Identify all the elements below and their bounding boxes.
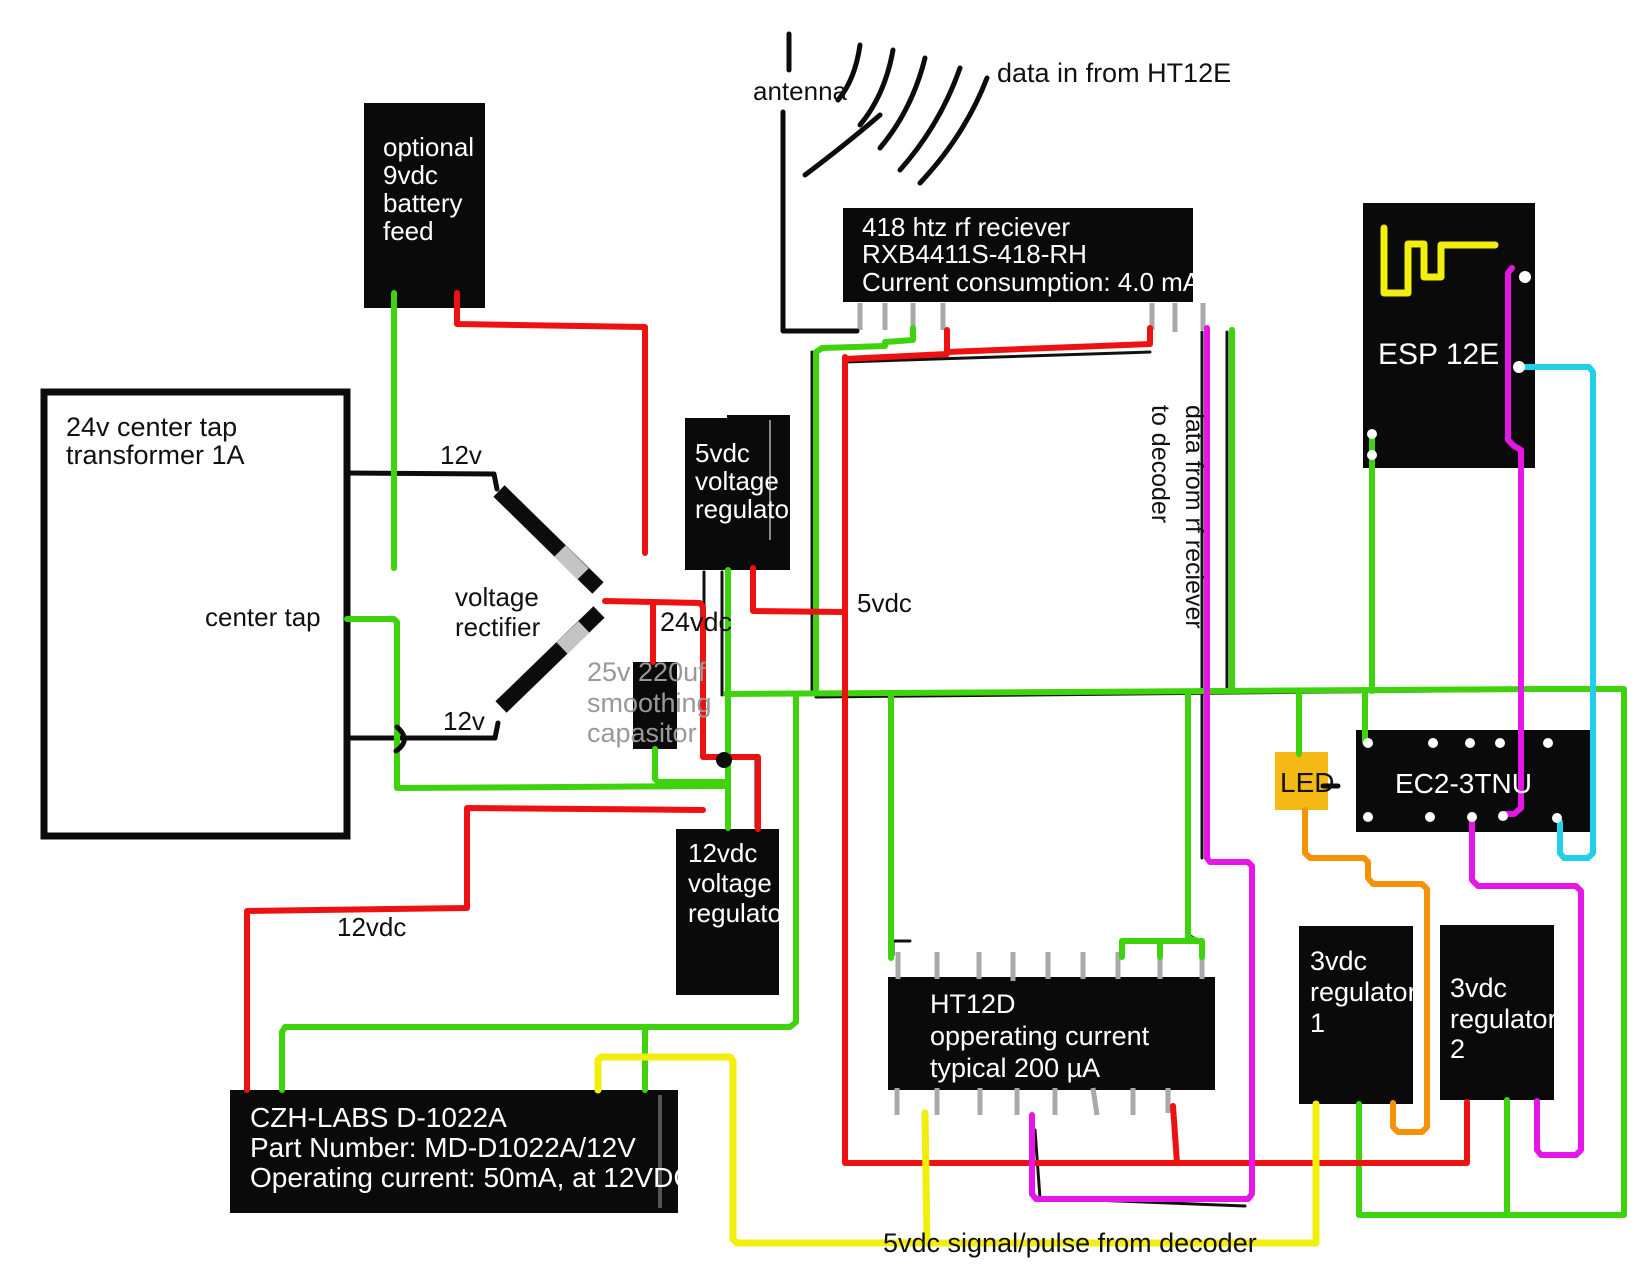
wire-battery-red [457, 293, 645, 553]
ht12d-bottom-pins [897, 1088, 1168, 1115]
czh-label-1: CZH-LABS D-1022A [250, 1102, 507, 1133]
reg5-label-3: regulator [695, 494, 798, 524]
reg12-label-1: 12vdc [688, 838, 757, 868]
battery-label-2: 9vdc [383, 160, 438, 190]
transformer-12v-top-wire [347, 473, 497, 489]
rectifier-label-1: voltage [455, 582, 539, 612]
pulse-label: 5vdc signal/pulse from decoder [883, 1228, 1257, 1258]
data-from-rf-label-2: to decoder [1146, 405, 1174, 523]
shadow-5vdc-out [753, 572, 843, 612]
data-from-rf-label-1: data from rf reciever [1180, 405, 1208, 629]
reg3-2-label-3: 2 [1450, 1034, 1465, 1064]
relay-label: EC2-3TNU [1395, 768, 1532, 799]
antenna-waves-icon [805, 45, 987, 183]
red-wires [247, 293, 1467, 1163]
transformer-label-1: 24v center tap [66, 412, 237, 442]
data-in-label: data in from HT12E [997, 58, 1231, 88]
wire-12vdc-feed [247, 808, 703, 1090]
wire-bus-to-ht12d-hook [1122, 694, 1202, 957]
reg3-2-label-2: regulator [1450, 1004, 1557, 1034]
battery-label-4: feed [383, 216, 434, 246]
vdc5-label: 5vdc [857, 588, 912, 618]
czh-label-3: Operating current: 50mA, at 12VDC. [250, 1162, 701, 1193]
circuit-diagram-page: antenna data in from HT12E optional 9vdc… [0, 0, 1650, 1275]
vdc24-label: 24vdc [660, 607, 732, 637]
led-label: LED [1280, 767, 1334, 798]
junction-dot [716, 752, 732, 768]
czh-label-2: Part Number: MD-D1022A/12V [250, 1132, 636, 1163]
ht12d-top-pins [898, 952, 1202, 981]
ht12d-label-1: HT12D [930, 989, 1016, 1019]
rf-label-1: 418 htz rf reciever [862, 212, 1070, 242]
ht12d-label-3: typical 200 µA [930, 1053, 1100, 1083]
esp-label: ESP 12E [1378, 338, 1499, 371]
circuit-diagram: antenna data in from HT12E optional 9vdc… [0, 0, 1650, 1275]
reg3-2-label-1: 3vdc [1450, 973, 1507, 1003]
capacitor-label-2: smoothing [587, 688, 712, 718]
reg12-label-3: regulator [688, 898, 791, 928]
v12-bottom-label: 12v [443, 706, 485, 736]
shadow-ht-magenta [1035, 1130, 1245, 1206]
center-tap-label: center tap [205, 602, 321, 632]
transformer-label-2: transformer 1A [66, 440, 245, 470]
reg12-label-2: voltage [688, 868, 772, 898]
capacitor-label-3: capasitor [587, 718, 697, 748]
rf-label-2: RXB4411S-418-RH [862, 239, 1087, 269]
rf-label-3: Current consumption: 4.0 mA [862, 267, 1201, 297]
ht12d-label-2: opperating current [930, 1021, 1150, 1051]
rectifier-label-2: rectifier [455, 612, 541, 642]
diode-top-band [560, 551, 583, 574]
reg3-1-label-3: 1 [1310, 1008, 1325, 1038]
capacitor-label-1: 25v 220uf [587, 657, 706, 687]
antenna-label: antenna [753, 76, 848, 106]
reg3-1-label-1: 3vdc [1310, 946, 1367, 976]
diode-bottom-band [562, 627, 584, 648]
vdc12-label: 12vdc [337, 912, 406, 942]
battery-label-3: battery [383, 188, 463, 218]
v12-top-label: 12v [440, 440, 482, 470]
reg5-label-1: 5vdc [695, 438, 750, 468]
wire-rf-green [816, 328, 913, 692]
reg5-label-2: voltage [695, 466, 779, 496]
reg3-1-label-2: regulator [1310, 977, 1417, 1007]
battery-label-1: optional [383, 132, 474, 162]
wire-capacitor-gnd [655, 749, 724, 782]
